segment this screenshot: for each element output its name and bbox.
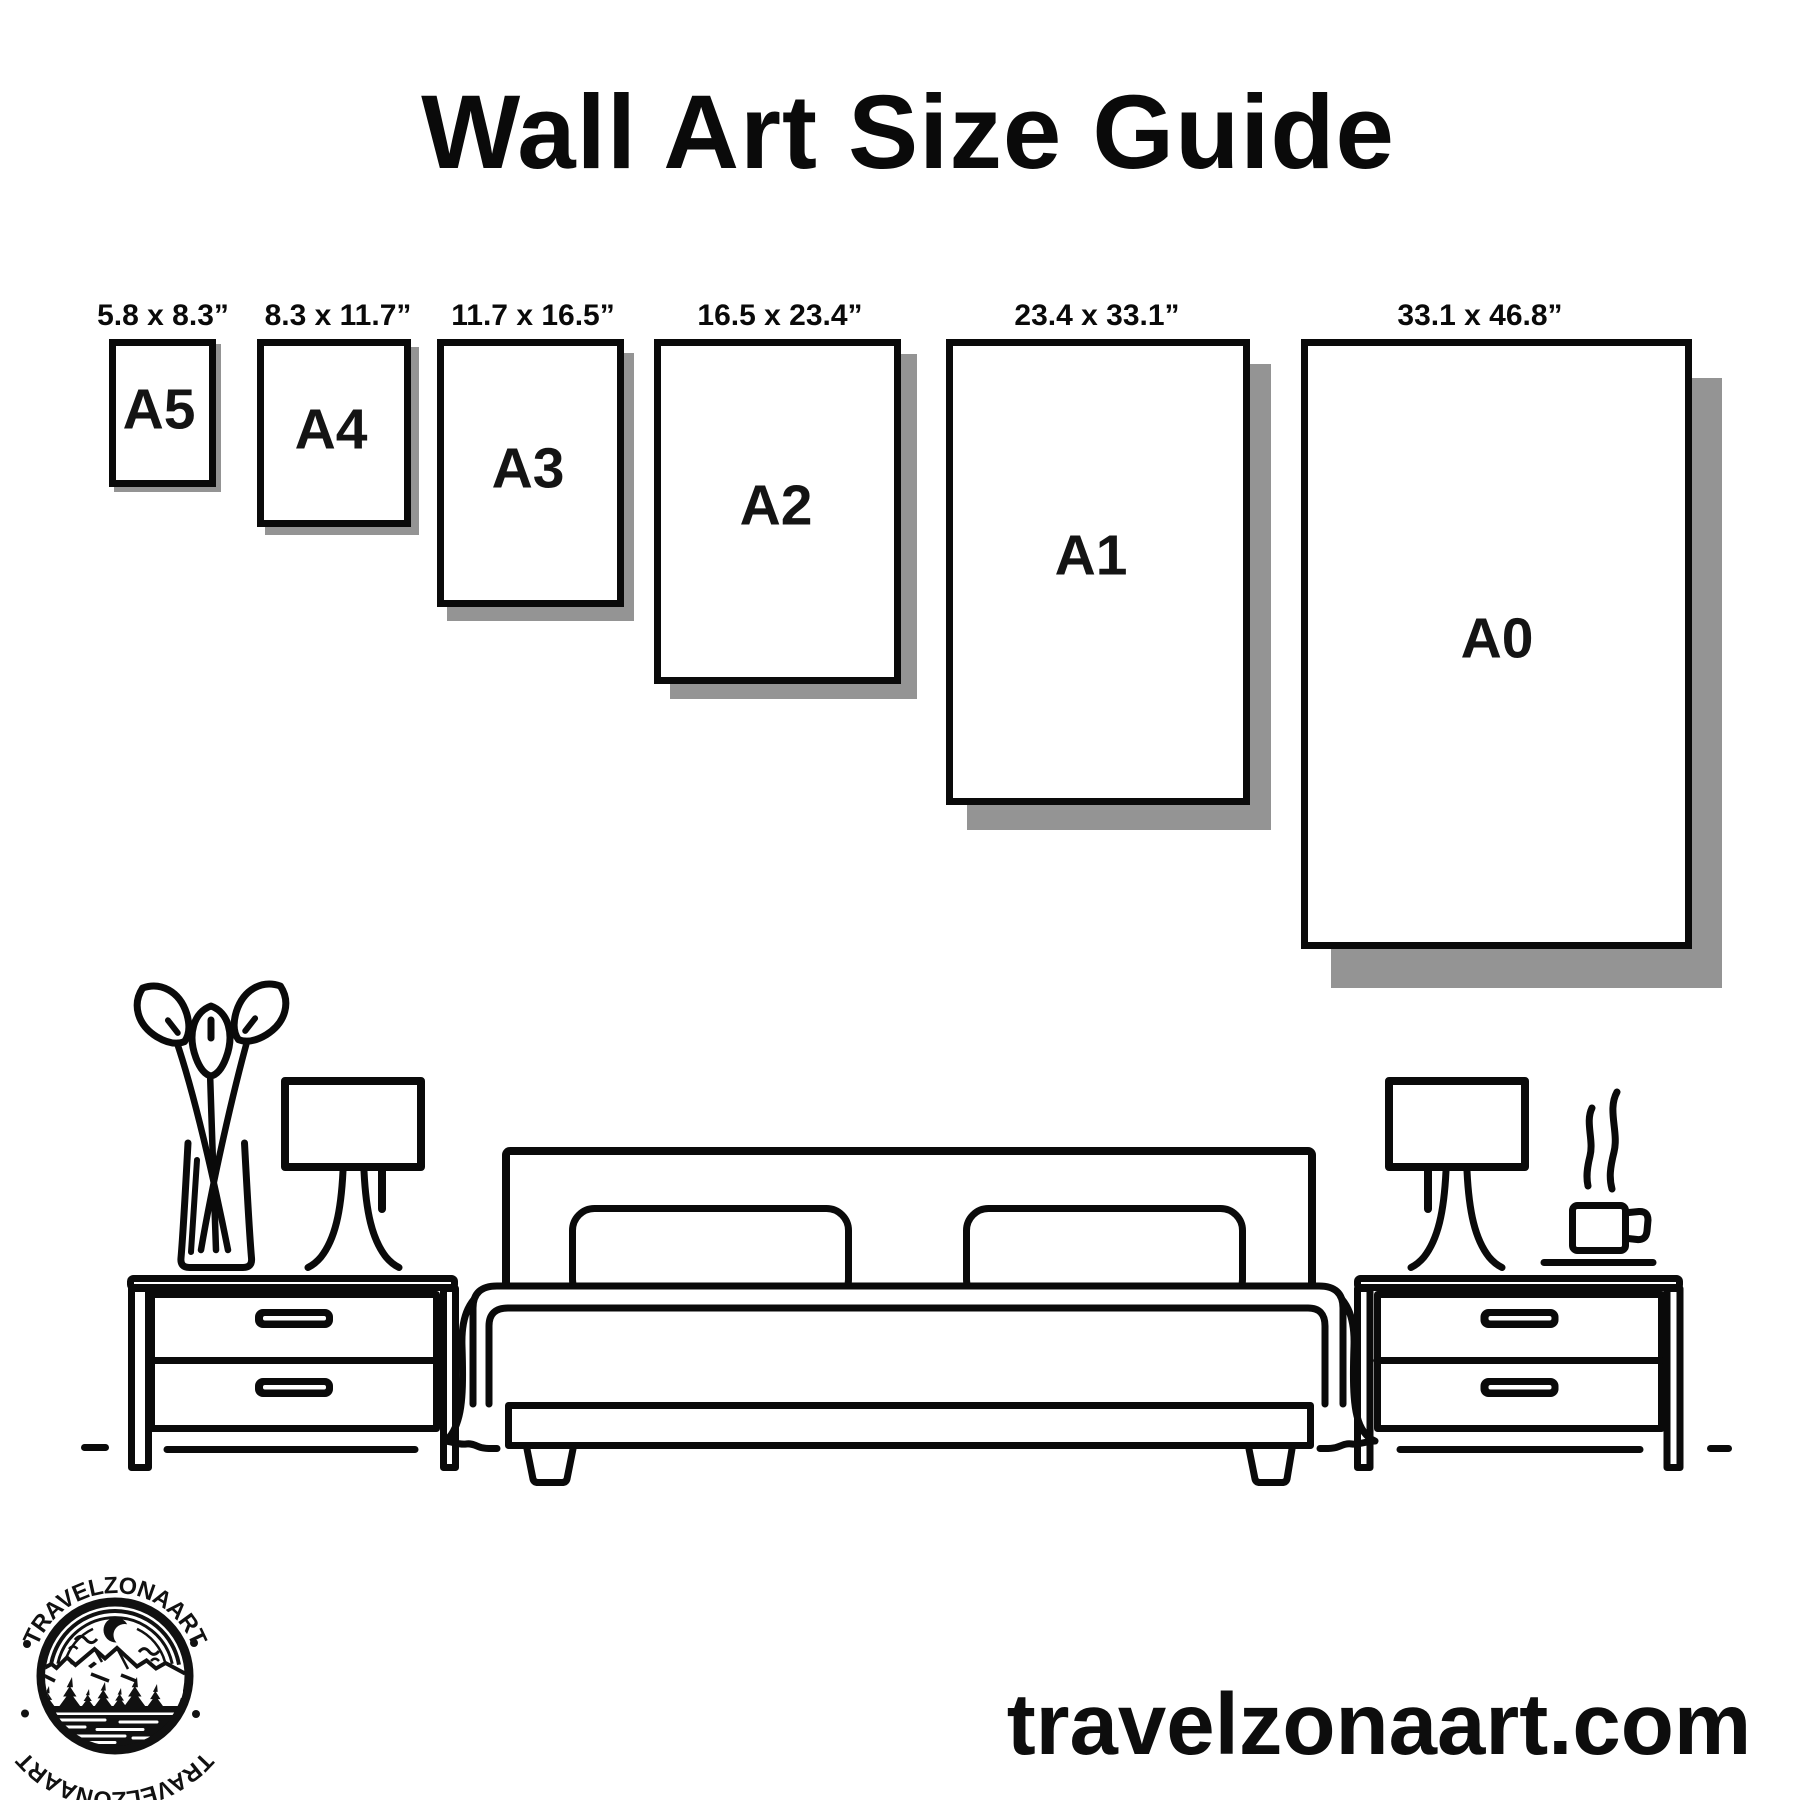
- svg-text:TRAVELZONAART: TRAVELZONAART: [11, 1747, 219, 1800]
